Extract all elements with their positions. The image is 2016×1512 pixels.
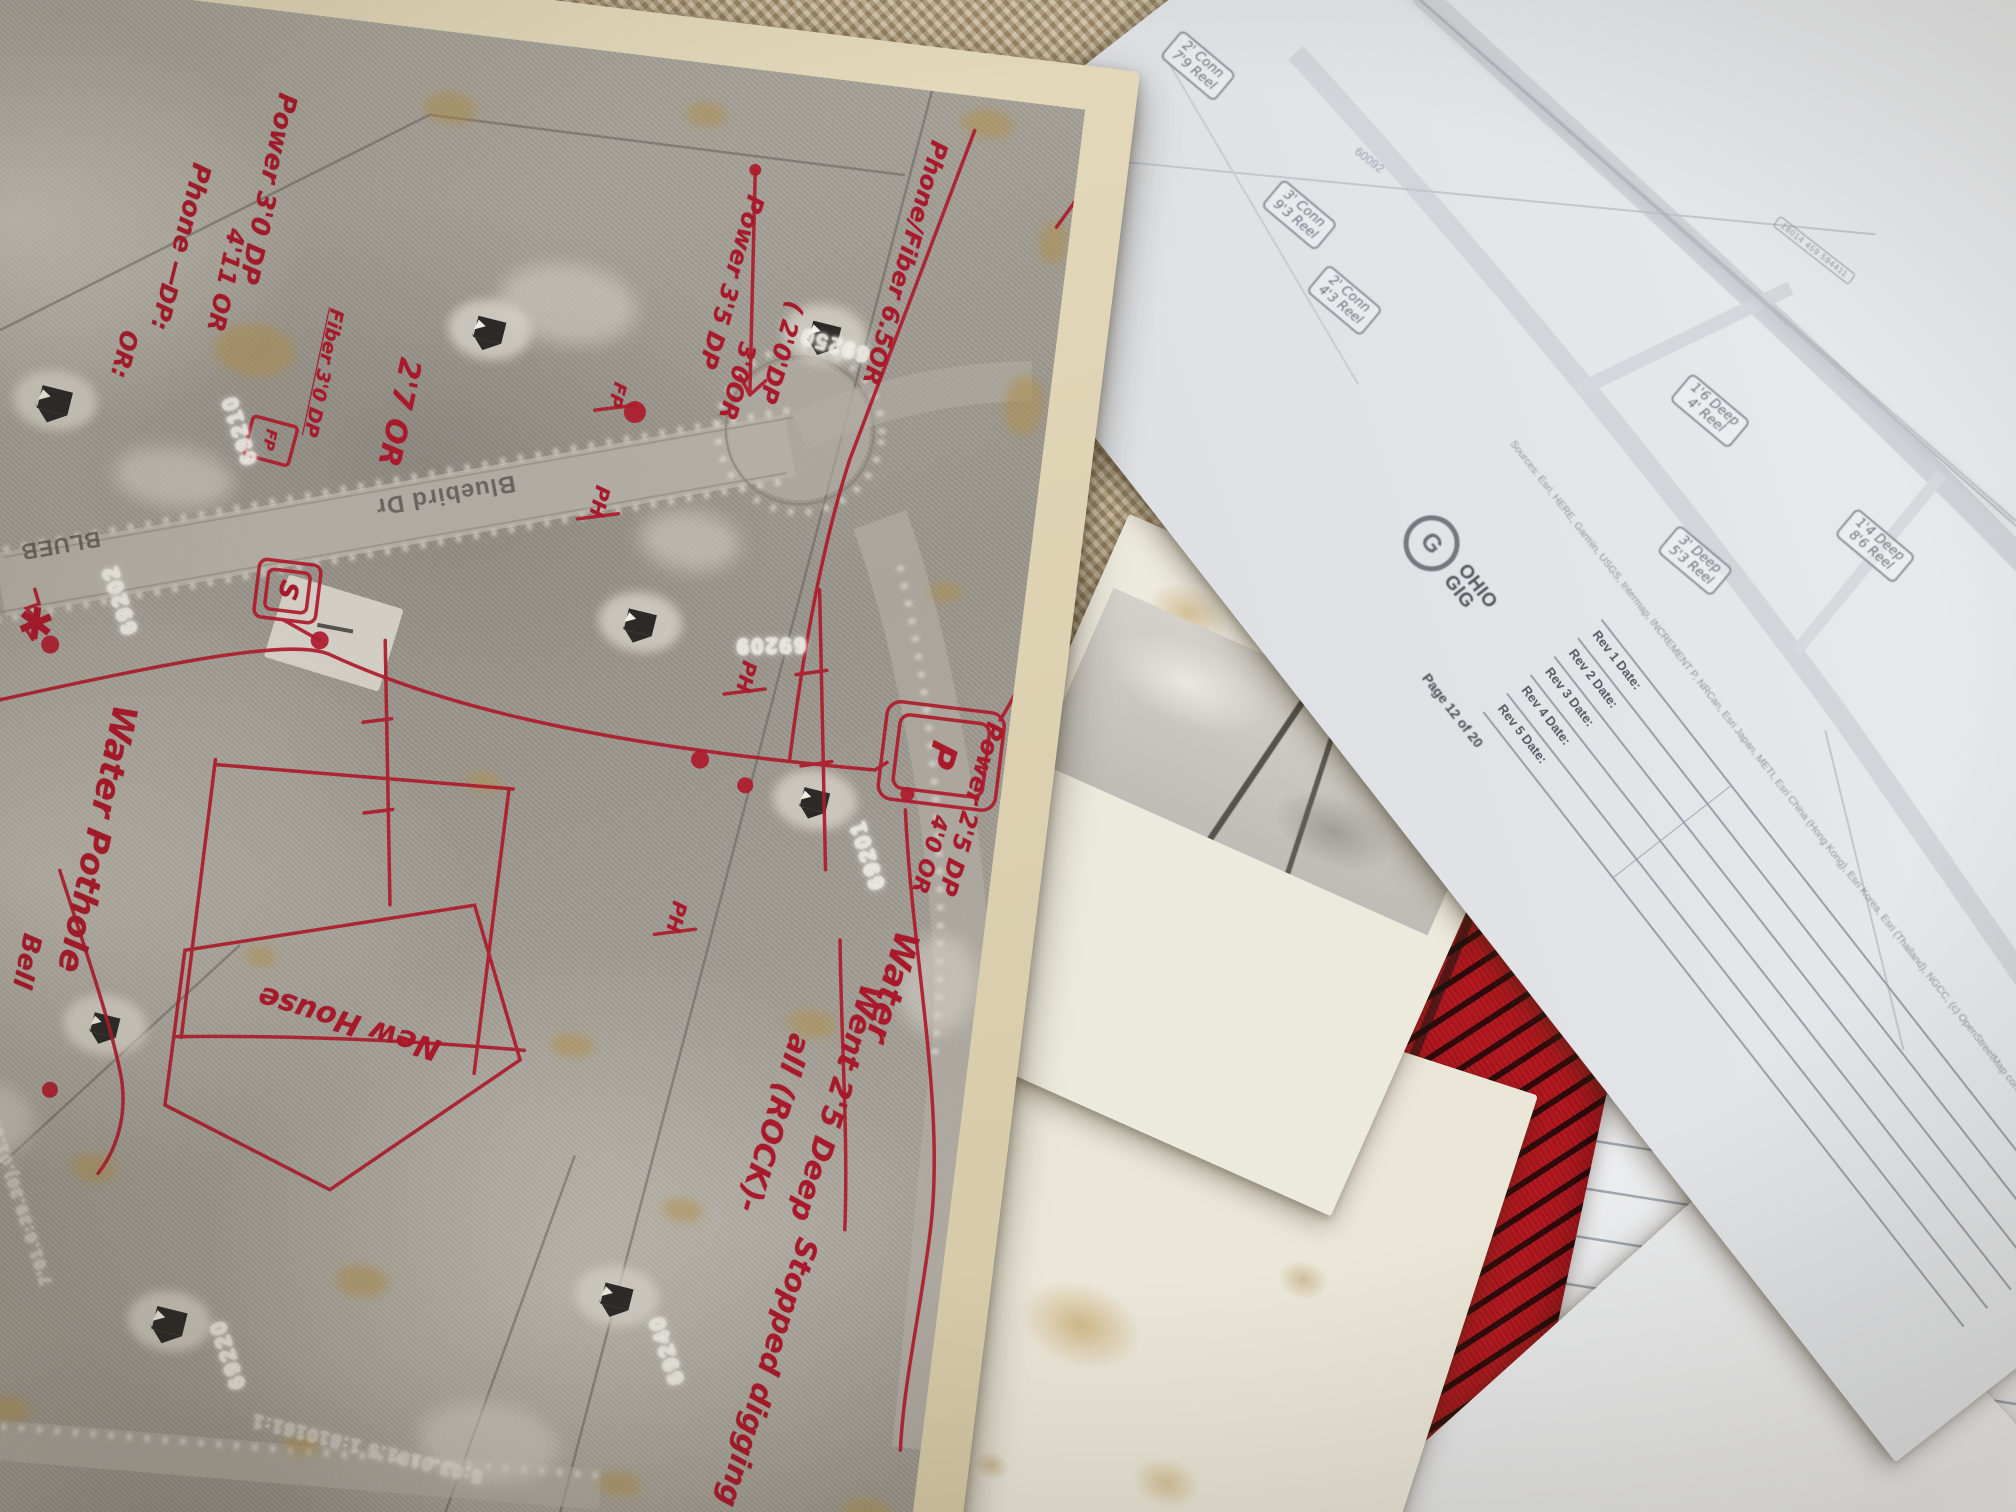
photo-of-documents: 2' Conn 7'9 Reel 3' Conn 9'3 Reel 2' Con… — [0, 0, 2016, 1512]
annotation-star-mark: ✱ — [14, 597, 57, 652]
red-utility-lines — [0, 0, 1135, 1459]
annotated-map-photocopy: Bluebird Dr BLUEB 69210 69202 69209 6920… — [0, 0, 1140, 1512]
house-number: 69209 — [735, 632, 807, 659]
